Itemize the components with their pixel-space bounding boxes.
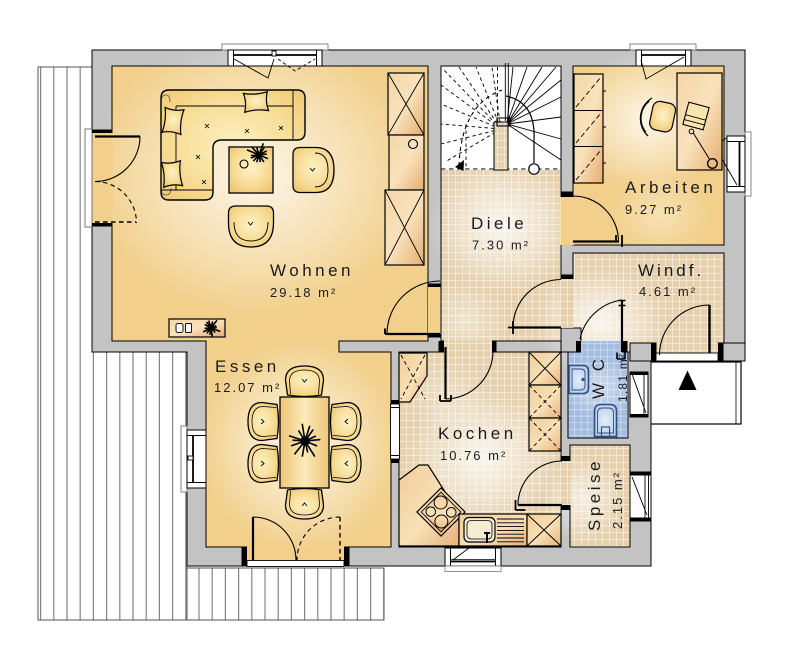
svg-text:9.27 m²: 9.27 m² bbox=[625, 202, 683, 217]
svg-text:Windf.: Windf. bbox=[638, 261, 704, 280]
svg-text:7.30 m²: 7.30 m² bbox=[472, 238, 530, 253]
svg-text:1,81 m²: 1,81 m² bbox=[616, 353, 630, 402]
svg-text:12.07 m²: 12.07 m² bbox=[214, 380, 281, 395]
svg-text:29.18 m²: 29.18 m² bbox=[270, 285, 337, 300]
svg-text:Essen: Essen bbox=[215, 357, 280, 376]
svg-text:Diele: Diele bbox=[471, 214, 527, 233]
svg-text:4.61 m²: 4.61 m² bbox=[639, 284, 697, 299]
svg-text:10.76 m²: 10.76 m² bbox=[440, 448, 507, 463]
svg-text:Wohnen: Wohnen bbox=[270, 261, 354, 280]
svg-text:Speise: Speise bbox=[585, 458, 604, 531]
svg-text:Arbeiten: Arbeiten bbox=[625, 178, 716, 197]
svg-text:W C: W C bbox=[589, 355, 608, 399]
svg-text:Kochen: Kochen bbox=[438, 424, 517, 443]
svg-text:2.15 m²: 2.15 m² bbox=[610, 471, 625, 529]
